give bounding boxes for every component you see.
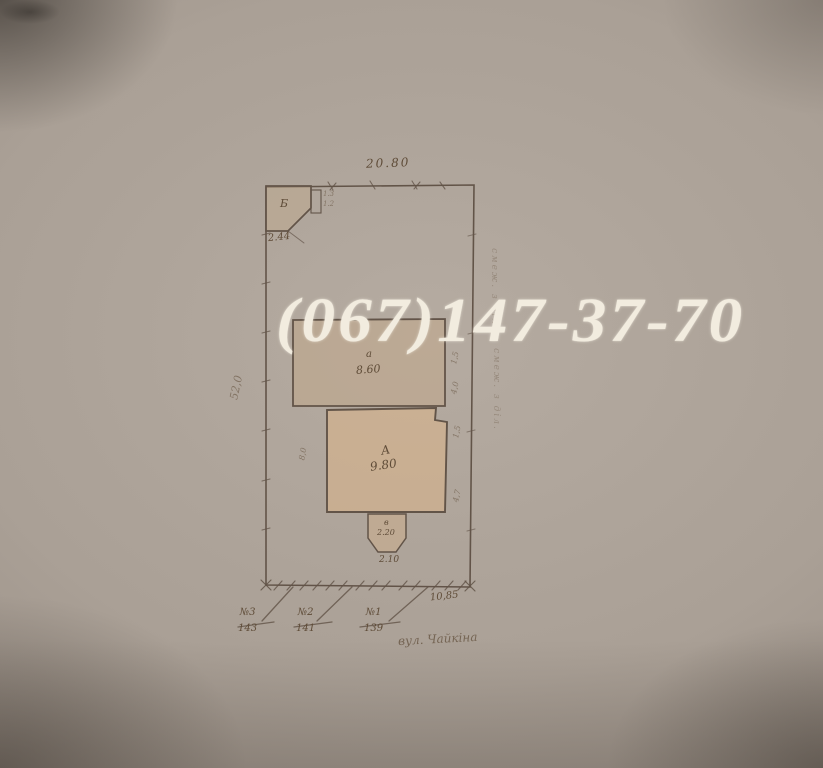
- scanned-site-plan-photo: 20.80 52,0 Б 2.44 1.3 1.2 а 8.60 А 9.80 …: [0, 0, 823, 768]
- shed-attachment-outline: [311, 190, 321, 213]
- porch-area-label: 2.20: [377, 529, 395, 537]
- shed-letter: Б: [280, 198, 288, 209]
- address-number: №3: [238, 608, 257, 618]
- shed-outline: [266, 186, 311, 231]
- porch-letter: в: [384, 519, 389, 527]
- address-fraction-2: №2 141: [296, 608, 315, 634]
- annex-area-label: 8.60: [356, 363, 381, 376]
- address-house: 139: [364, 624, 383, 634]
- address-number: №1: [364, 608, 383, 618]
- address-fraction-3: №3 143: [238, 608, 257, 634]
- shed-attachment-dim-top: 1.3: [323, 191, 334, 198]
- address-house: 143: [238, 624, 257, 634]
- porch-dimension-below: 2.10: [379, 556, 399, 565]
- address-leaders: [238, 587, 428, 627]
- watermark-phone-number: (067)147-37-70: [276, 286, 745, 357]
- shed-attachment-dim-bottom: 1.2: [323, 201, 334, 208]
- address-number: №2: [296, 608, 315, 618]
- site-plan-drawing: [0, 0, 823, 768]
- right-margin-note-lower: смеж. з діл.: [491, 348, 500, 431]
- address-fraction-1: №1 139: [364, 608, 383, 634]
- address-house: 141: [296, 624, 315, 634]
- top-dimension-label: 20.80: [366, 156, 411, 170]
- house-area-label: 9.80: [369, 457, 397, 473]
- house-letter: А: [380, 443, 391, 456]
